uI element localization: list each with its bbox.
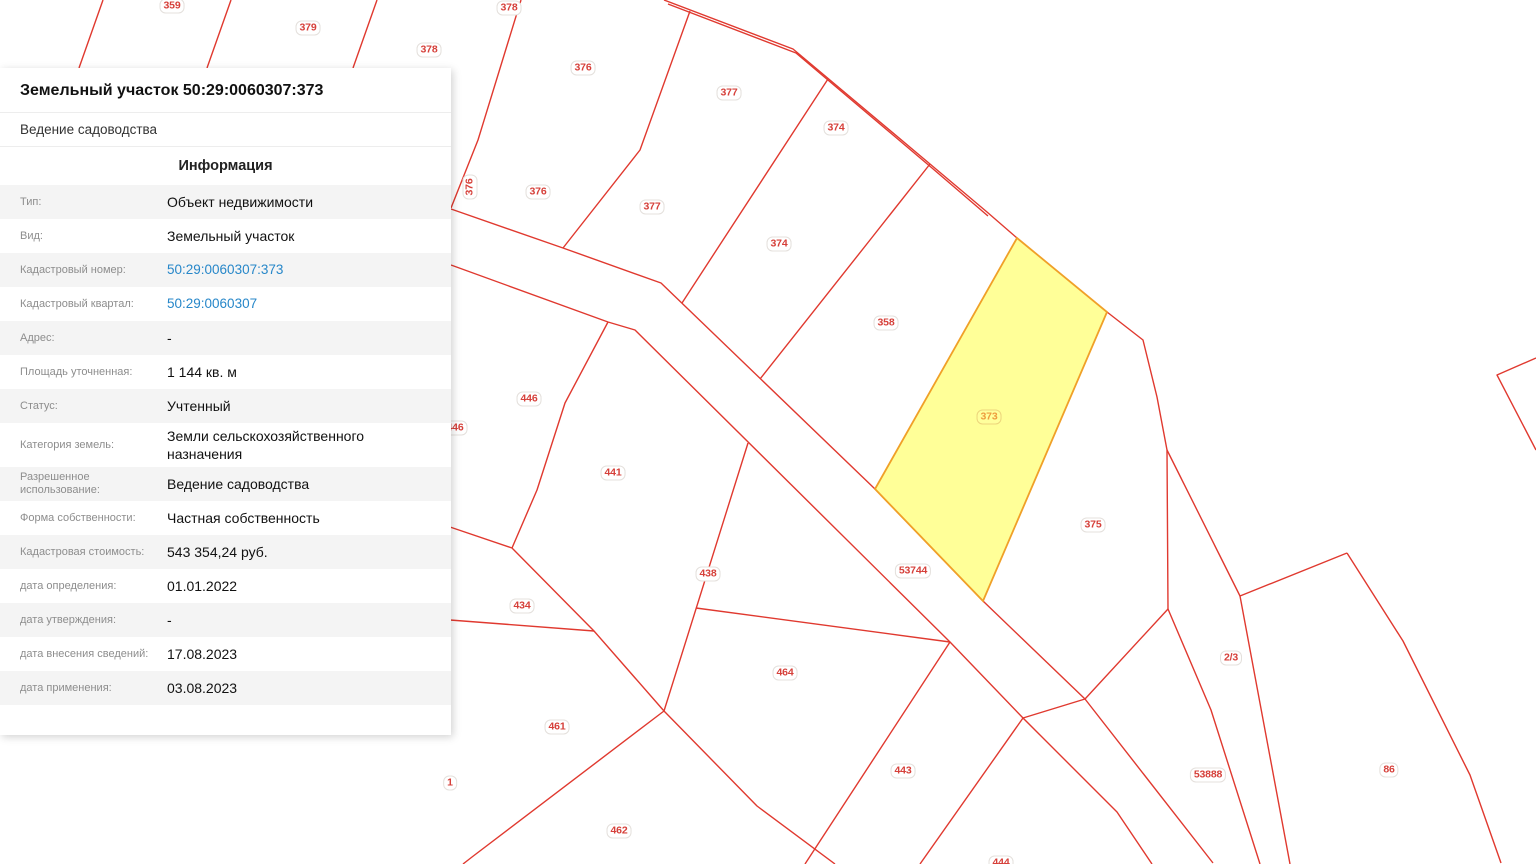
info-row: Вид:Земельный участок	[0, 219, 451, 253]
cadastral-link[interactable]: 50:29:0060307	[167, 295, 257, 313]
panel-title: Земельный участок 50:29:0060307:373	[0, 68, 451, 113]
info-row: Адрес:-	[0, 321, 451, 355]
parcel-label[interactable]: 359	[160, 0, 185, 14]
parcel-label[interactable]: 378	[417, 43, 442, 58]
info-row: Категория земель:Земли сельскохозяйствен…	[0, 423, 451, 467]
parcel-label[interactable]: 441	[601, 466, 626, 481]
info-row: Кадастровый номер:50:29:0060307:373	[0, 253, 451, 287]
info-row-value: Частная собственность	[167, 509, 320, 527]
panel-subtitle: Ведение садоводства	[0, 113, 451, 147]
panel-section-header: Информация	[0, 147, 451, 185]
info-row: Кадастровая стоимость:543 354,24 руб.	[0, 535, 451, 569]
parcel-label[interactable]: 376	[571, 61, 596, 76]
info-row-label: Адрес:	[20, 332, 167, 345]
info-row-label: Форма собственности:	[20, 512, 167, 525]
parcel-label[interactable]: 464	[773, 666, 798, 681]
parcel-info-panel: Земельный участок 50:29:0060307:373 Веде…	[0, 68, 451, 735]
info-row-label: дата применения:	[20, 682, 167, 695]
parcel-label[interactable]: 443	[891, 764, 916, 779]
parcel-label[interactable]: 461	[545, 720, 570, 735]
info-row-value: Объект недвижимости	[167, 193, 313, 211]
parcel-label[interactable]: 446	[517, 392, 542, 407]
parcel-label[interactable]: 376	[526, 185, 551, 200]
parcel-label-highlighted[interactable]: 373	[977, 410, 1002, 425]
info-row-value: -	[167, 329, 172, 347]
info-row-label: Кадастровая стоимость:	[20, 546, 167, 559]
parcel-label[interactable]: 376	[463, 175, 478, 200]
info-row-label: дата внесения сведений:	[20, 648, 167, 661]
parcel-label[interactable]: 374	[767, 237, 792, 252]
info-row: Кадастровый квартал:50:29:0060307	[0, 287, 451, 321]
parcel-label[interactable]: 374	[824, 121, 849, 136]
parcel-label[interactable]: 434	[510, 599, 535, 614]
info-row-value: 03.08.2023	[167, 679, 237, 697]
info-row-label: Площадь уточненная:	[20, 366, 167, 379]
parcel-label[interactable]: 1	[443, 776, 457, 791]
info-row-value: 17.08.2023	[167, 645, 237, 663]
info-row-value: 543 354,24 руб.	[167, 543, 268, 561]
parcel-label[interactable]: 86	[1379, 763, 1398, 778]
info-row-value: Земельный участок	[167, 227, 294, 245]
info-rows: Тип:Объект недвижимостиВид:Земельный уча…	[0, 185, 451, 705]
parcel-label[interactable]: 2/3	[1220, 651, 1242, 666]
info-row: Тип:Объект недвижимости	[0, 185, 451, 219]
parcel-label[interactable]: 377	[717, 86, 742, 101]
info-row-value: Ведение садоводства	[167, 475, 309, 493]
info-row: дата внесения сведений:17.08.2023	[0, 637, 451, 671]
info-row-label: Кадастровый квартал:	[20, 298, 167, 311]
info-row: дата применения:03.08.2023	[0, 671, 451, 705]
parcel-label[interactable]: 444	[989, 856, 1014, 864]
info-row: Форма собственности:Частная собственност…	[0, 501, 451, 535]
info-row-label: Тип:	[20, 196, 167, 209]
parcel-label[interactable]: 378	[497, 1, 522, 16]
info-row-label: дата утверждения:	[20, 614, 167, 627]
parcel-label[interactable]: 462	[607, 824, 632, 839]
parcel-label[interactable]: 53744	[895, 564, 931, 579]
parcel-label[interactable]: 377	[640, 200, 665, 215]
info-row: дата определения:01.01.2022	[0, 569, 451, 603]
info-row-label: Категория земель:	[20, 439, 167, 452]
cadastral-link[interactable]: 50:29:0060307:373	[167, 261, 283, 279]
info-row-label: Вид:	[20, 230, 167, 243]
parcel-label[interactable]: 358	[874, 316, 899, 331]
info-row-value: -	[167, 611, 172, 629]
parcel-label[interactable]: 438	[696, 567, 721, 582]
cadastral-map-app: 3593793783783763773743763763773743584464…	[0, 0, 1536, 864]
info-row: Разрешенное использование:Ведение садово…	[0, 467, 451, 501]
info-row: Статус:Учтенный	[0, 389, 451, 423]
info-row-value: Земли сельскохозяйственного назначения	[167, 427, 437, 463]
info-row-label: Разрешенное использование:	[20, 471, 167, 497]
parcel-label[interactable]: 53888	[1190, 768, 1226, 783]
parcel-label[interactable]: 375	[1081, 518, 1106, 533]
info-row-value: Учтенный	[167, 397, 231, 415]
info-row: Площадь уточненная:1 144 кв. м	[0, 355, 451, 389]
info-row-label: Кадастровый номер:	[20, 264, 167, 277]
info-row: дата утверждения:-	[0, 603, 451, 637]
info-row-value: 01.01.2022	[167, 577, 237, 595]
info-row-value: 1 144 кв. м	[167, 363, 237, 381]
info-row-label: Статус:	[20, 400, 167, 413]
parcel-label[interactable]: 379	[296, 21, 321, 36]
info-row-label: дата определения:	[20, 580, 167, 593]
